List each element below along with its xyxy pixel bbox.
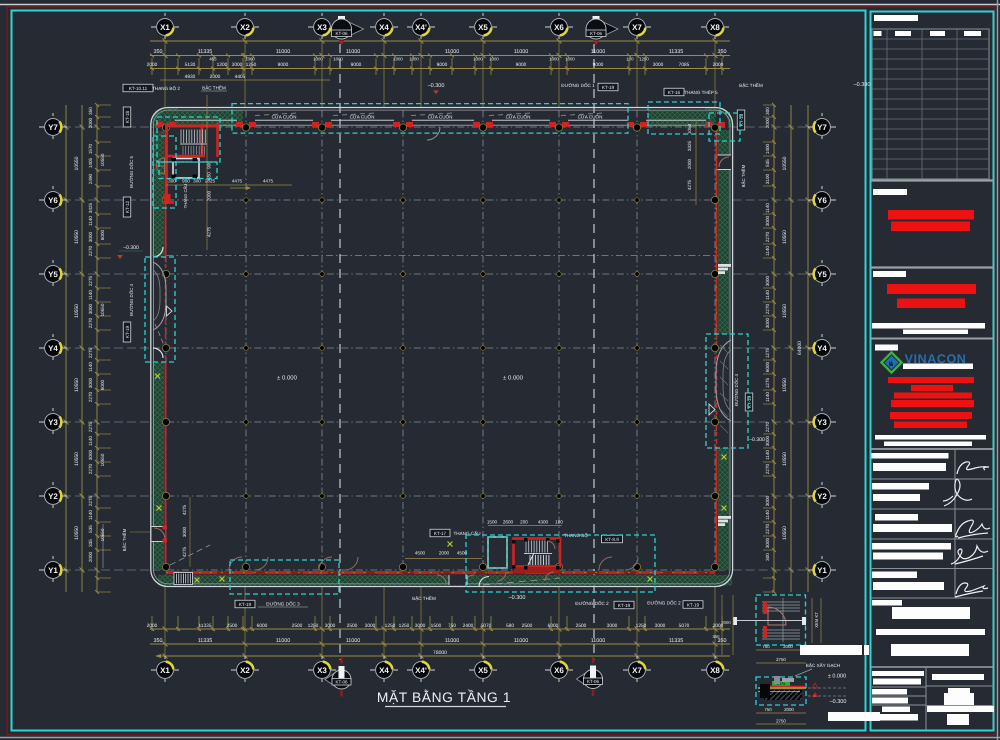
svg-text:1275: 1275 [765,377,770,388]
svg-text:10550: 10550 [100,453,105,466]
svg-text:6000: 6000 [257,623,268,629]
svg-text:3000: 3000 [365,623,376,629]
svg-text:X5: X5 [478,666,488,675]
svg-text:1000: 1000 [393,57,403,62]
svg-text:2000: 2000 [147,62,158,68]
svg-text:Y3: Y3 [48,418,58,427]
svg-text:3000: 3000 [88,303,93,314]
svg-text:2000: 2000 [713,62,724,68]
svg-text:10550: 10550 [100,153,105,166]
svg-text:3000: 3000 [88,231,93,242]
svg-text:3000: 3000 [653,62,664,68]
svg-text:1250: 1250 [636,623,647,629]
svg-text:4275: 4275 [687,179,692,190]
svg-text:2000: 2000 [88,117,93,128]
svg-text:XEM KT: XEM KT [814,612,819,628]
svg-text:3000: 3000 [765,317,770,328]
svg-text:2000: 2000 [88,551,93,562]
svg-text:BẬC THỀM: BẬC THỀM [202,85,226,91]
svg-text:THANG THÉP 5: THANG THÉP 5 [684,90,718,95]
svg-text:1000: 1000 [473,57,483,62]
svg-text:1250: 1250 [246,62,257,68]
svg-text:1000: 1000 [549,57,559,62]
svg-text:4500: 4500 [415,551,426,556]
svg-text:2275: 2275 [88,495,93,506]
svg-text:Y3: Y3 [817,418,827,427]
svg-text:2000: 2000 [784,707,794,712]
svg-text:2270: 2270 [88,391,93,402]
svg-text:3425: 3425 [88,202,93,213]
svg-text:10550: 10550 [782,526,788,540]
svg-text:Y7: Y7 [817,123,827,132]
svg-text:Y1: Y1 [817,566,827,575]
svg-text:KT-06: KT-06 [335,31,348,36]
svg-text:10550: 10550 [782,304,788,318]
svg-text:2275: 2275 [88,347,93,358]
svg-text:2000: 2000 [687,158,692,169]
svg-text:3000: 3000 [415,623,426,629]
svg-text:ĐƯỜNG DỐC 2: ĐƯỜNG DỐC 2 [575,600,609,606]
svg-text:3000: 3000 [765,215,770,226]
svg-text:11000: 11000 [445,49,460,55]
svg-text:2500: 2500 [292,623,303,629]
svg-text:11335: 11335 [669,638,684,644]
svg-text:11000: 11000 [514,638,529,644]
svg-text:1140: 1140 [765,392,770,402]
svg-text:300: 300 [193,179,201,184]
svg-text:3000: 3000 [88,377,93,388]
svg-text:11000: 11000 [346,638,361,644]
svg-text:100: 100 [626,57,634,62]
svg-text:1140: 1140 [88,436,93,446]
svg-text:3000: 3000 [765,537,770,548]
svg-text:10550: 10550 [782,156,788,170]
svg-text:10550: 10550 [782,230,788,244]
svg-text:Y5: Y5 [817,270,827,279]
svg-text:1000: 1000 [565,57,575,62]
svg-text:KT-19: KT-19 [239,602,252,607]
svg-text:7085: 7085 [679,62,690,68]
svg-text:1140: 1140 [765,510,770,520]
svg-text:3000: 3000 [765,275,770,286]
svg-text:THANG BỘ: THANG BỘ [564,532,588,538]
svg-text:X4: X4 [379,23,389,32]
svg-text:BẬC XÂY GẠCH: BẬC XÂY GẠCH [806,662,840,668]
svg-text:1000: 1000 [313,57,323,62]
svg-text:455: 455 [209,57,217,62]
svg-text:3000: 3000 [765,495,770,506]
svg-text:X7: X7 [632,23,642,32]
svg-text:2000: 2000 [765,117,770,128]
svg-text:535: 535 [765,159,770,167]
svg-text:1500: 1500 [431,623,442,629]
svg-text:3000: 3000 [325,623,336,629]
svg-text:300: 300 [765,553,770,561]
svg-text:X6: X6 [554,666,564,675]
svg-text:Y7: Y7 [48,123,58,132]
svg-text:2500: 2500 [227,623,238,629]
svg-text:10550: 10550 [74,526,80,540]
svg-text:580: 580 [506,623,514,629]
svg-text:1000: 1000 [333,57,343,62]
svg-text:11000: 11000 [276,638,291,644]
svg-text:Y6: Y6 [817,196,827,205]
svg-text:X3: X3 [317,23,327,32]
svg-text:Y6: Y6 [48,196,58,205]
svg-text:2500: 2500 [347,623,358,629]
svg-text:2270: 2270 [88,317,93,328]
svg-text:10550: 10550 [100,528,105,541]
svg-text:KT-10.11: KT-10.11 [129,86,148,91]
svg-text:ĐƯỜNG DỐC 5: ĐƯỜNG DỐC 5 [129,155,134,187]
svg-text:–0.300: –0.300 [123,245,139,251]
svg-text:900: 900 [182,179,190,184]
svg-text:Y2: Y2 [817,492,827,501]
svg-text:2500: 2500 [522,623,533,629]
svg-text:1140: 1140 [88,362,93,372]
svg-text:–0.300: –0.300 [509,595,526,601]
svg-text:KT-12: KT-12 [125,200,130,213]
svg-text:350: 350 [713,634,721,639]
svg-text:1500: 1500 [487,520,498,525]
svg-text:11000: 11000 [591,638,606,644]
svg-text:ĐƯỜNG DỐC 1: ĐƯỜNG DỐC 1 [561,82,595,88]
svg-text:2275: 2275 [88,275,93,286]
svg-text:1140: 1140 [88,510,93,520]
svg-text:2270: 2270 [88,245,93,256]
svg-text:2490: 2490 [88,173,93,184]
svg-text:2000: 2000 [721,620,731,625]
svg-text:1140: 1140 [765,290,770,300]
svg-text:KT-06: KT-06 [335,680,348,685]
svg-text:KT-19: KT-19 [687,602,700,607]
svg-text:1000: 1000 [489,57,499,62]
svg-text:KT-19: KT-19 [125,325,130,338]
svg-text:–0.300: –0.300 [749,437,765,443]
svg-text:X2: X2 [240,666,250,675]
svg-text:2000: 2000 [210,74,221,80]
svg-text:9000: 9000 [437,62,448,68]
svg-text:5130: 5130 [185,62,196,68]
svg-text:ĐƯỜNG DỐC 4: ĐƯỜNG DỐC 4 [734,373,739,405]
svg-text:11000: 11000 [514,49,529,55]
svg-text:1400: 1400 [765,143,770,154]
svg-text:78000: 78000 [433,650,447,656]
svg-text:KT-18: KT-18 [125,110,130,123]
svg-text:1140: 1140 [88,290,93,300]
svg-text:X7: X7 [632,666,642,675]
svg-text:6000: 6000 [765,361,770,372]
svg-text:2270: 2270 [765,303,770,314]
svg-text:2270: 2270 [765,463,770,474]
svg-text:X4': X4' [415,666,427,675]
svg-text:10550: 10550 [100,303,105,316]
svg-text:1570: 1570 [88,143,93,154]
svg-text:350: 350 [88,107,93,115]
svg-text:2275: 2275 [88,421,93,432]
svg-text:64000: 64000 [797,341,803,355]
svg-text:KT-19: KT-19 [602,85,615,90]
svg-text:4475: 4475 [263,179,274,184]
svg-text:1140: 1140 [765,450,770,460]
svg-text:9000: 9000 [278,62,289,68]
svg-text:3100: 3100 [765,173,770,184]
svg-text:11000: 11000 [346,49,361,55]
svg-text:535: 535 [88,525,93,533]
svg-text:4475: 4475 [232,179,243,184]
svg-text:1140: 1140 [88,216,93,226]
svg-text:X8: X8 [710,666,720,675]
svg-text:KT-17: KT-17 [434,531,447,536]
svg-text:2000: 2000 [147,623,158,629]
svg-text:10550: 10550 [74,452,80,466]
svg-text:Y1: Y1 [48,566,58,575]
svg-text:4930: 4930 [185,74,196,80]
svg-text:KT-06: KT-06 [590,31,603,36]
svg-text:10550: 10550 [782,452,788,466]
svg-text:1000: 1000 [245,57,255,62]
svg-text:2270: 2270 [765,421,770,432]
svg-text:750: 750 [764,707,772,712]
svg-text:1250: 1250 [639,57,649,62]
svg-text:± 0.000: ± 0.000 [828,674,846,680]
svg-text:350: 350 [154,638,163,644]
svg-text:X8: X8 [710,23,720,32]
svg-text:3000: 3000 [655,623,666,629]
svg-text:2000: 2000 [207,190,212,201]
svg-text:9000: 9000 [593,62,604,68]
svg-text:2000: 2000 [783,644,793,649]
svg-text:11000: 11000 [591,49,606,55]
svg-text:X4: X4 [379,666,389,675]
svg-text:–0.300: –0.300 [428,83,445,89]
svg-text:10550: 10550 [74,230,80,244]
svg-text:–0.300: –0.300 [854,82,871,88]
svg-text:6000: 6000 [548,623,559,629]
svg-text:3325: 3325 [687,140,692,151]
svg-text:1250: 1250 [308,623,319,629]
svg-text:4275: 4275 [182,546,187,557]
svg-text:3000: 3000 [232,62,243,68]
svg-text:ĐƯỜNG DỐC 3: ĐƯỜNG DỐC 3 [266,601,300,607]
svg-text:2270: 2270 [765,231,770,242]
svg-text:BẬC THỀM: BẬC THỀM [412,595,436,601]
svg-text:4275: 4275 [207,226,212,237]
svg-text:5070: 5070 [679,623,690,629]
svg-text:10550: 10550 [74,156,80,170]
svg-text:X5: X5 [478,23,488,32]
svg-text:1000: 1000 [409,57,419,62]
svg-text:10550: 10550 [782,378,788,392]
svg-text:300: 300 [765,107,770,115]
svg-text:1140: 1140 [765,246,770,256]
svg-text:6000: 6000 [100,229,105,240]
svg-text:KT-19: KT-19 [618,603,631,608]
svg-text:11335: 11335 [669,49,684,55]
svg-text:2600: 2600 [503,520,514,525]
svg-text:1275: 1275 [765,347,770,358]
svg-text:11335: 11335 [199,623,212,629]
svg-text:KT-8.9: KT-8.9 [605,537,619,542]
svg-text:Y4: Y4 [48,344,58,353]
svg-text:BẬC THỀM: BẬC THỀM [122,528,127,551]
svg-text:2400: 2400 [463,623,474,629]
svg-text:X6: X6 [554,23,564,32]
svg-text:2270: 2270 [88,463,93,474]
svg-text:X3: X3 [317,666,327,675]
svg-text:1250: 1250 [399,623,410,629]
svg-text:6000: 6000 [100,379,105,390]
svg-text:100: 100 [555,520,563,525]
svg-text:THANG CẤU: THANG CẤU [183,184,188,209]
svg-text:X4': X4' [415,23,427,32]
svg-text:1200: 1200 [217,62,228,68]
svg-text:BẬC THỀM: BẬC THỀM [739,82,763,88]
svg-text:9000: 9000 [516,62,527,68]
svg-text:± 0.000: ± 0.000 [503,375,524,382]
svg-text:ĐƯỜNG DỐC 2: ĐƯỜNG DỐC 2 [647,600,681,606]
svg-text:3000: 3000 [765,435,770,446]
svg-text:4405: 4405 [235,74,246,80]
svg-text:–0.300: –0.300 [830,699,847,705]
svg-text:1140: 1140 [765,203,770,213]
svg-text:Y2: Y2 [48,492,58,501]
svg-text:KT-06: KT-06 [587,679,600,684]
svg-text:4275: 4275 [182,504,187,515]
svg-text:BẬC THỀM: BẬC THỀM [741,164,746,187]
svg-text:350: 350 [154,49,163,55]
svg-text:200: 200 [520,520,528,525]
svg-text:10550: 10550 [74,378,80,392]
svg-text:300: 300 [168,179,176,184]
svg-text:2750: 2750 [776,657,786,662]
svg-text:2270: 2270 [765,523,770,534]
svg-text:10550: 10550 [74,304,80,318]
svg-text:± 0.000: ± 0.000 [277,375,298,382]
svg-text:Y5: Y5 [48,270,58,279]
svg-text:350: 350 [718,49,727,55]
svg-text:11335: 11335 [198,49,213,55]
svg-text:4300: 4300 [538,520,549,525]
svg-text:X1: X1 [160,23,170,32]
svg-text:X2: X2 [240,23,250,32]
svg-text:2000: 2000 [439,551,450,556]
svg-text:1405: 1405 [88,157,93,168]
svg-text:750: 750 [448,623,456,629]
svg-text:11000: 11000 [445,638,460,644]
svg-text:9000: 9000 [351,62,362,68]
svg-text:X1: X1 [160,666,170,675]
svg-text:3000: 3000 [182,526,187,537]
svg-text:THANG BỘ 2: THANG BỘ 2 [152,85,180,91]
svg-text:KT-16: KT-16 [668,90,681,95]
svg-text:2750: 2750 [776,719,786,724]
svg-text:1250: 1250 [385,623,396,629]
svg-text:335: 335 [88,539,93,547]
svg-text:1050: 1050 [687,123,692,134]
svg-text:750: 750 [762,644,770,649]
svg-text:11335: 11335 [198,638,213,644]
svg-text:2500: 2500 [576,623,587,629]
svg-text:3000: 3000 [88,449,93,460]
svg-text:ĐƯỜNG DỐC 4: ĐƯỜNG DỐC 4 [129,283,134,315]
svg-text:5070: 5070 [481,623,492,629]
svg-text:3000: 3000 [607,623,618,629]
svg-text:MẶT BẰNG TẦNG 1: MẶT BẰNG TẦNG 1 [377,689,511,705]
svg-text:Y4: Y4 [817,344,827,353]
svg-text:11000: 11000 [276,49,291,55]
